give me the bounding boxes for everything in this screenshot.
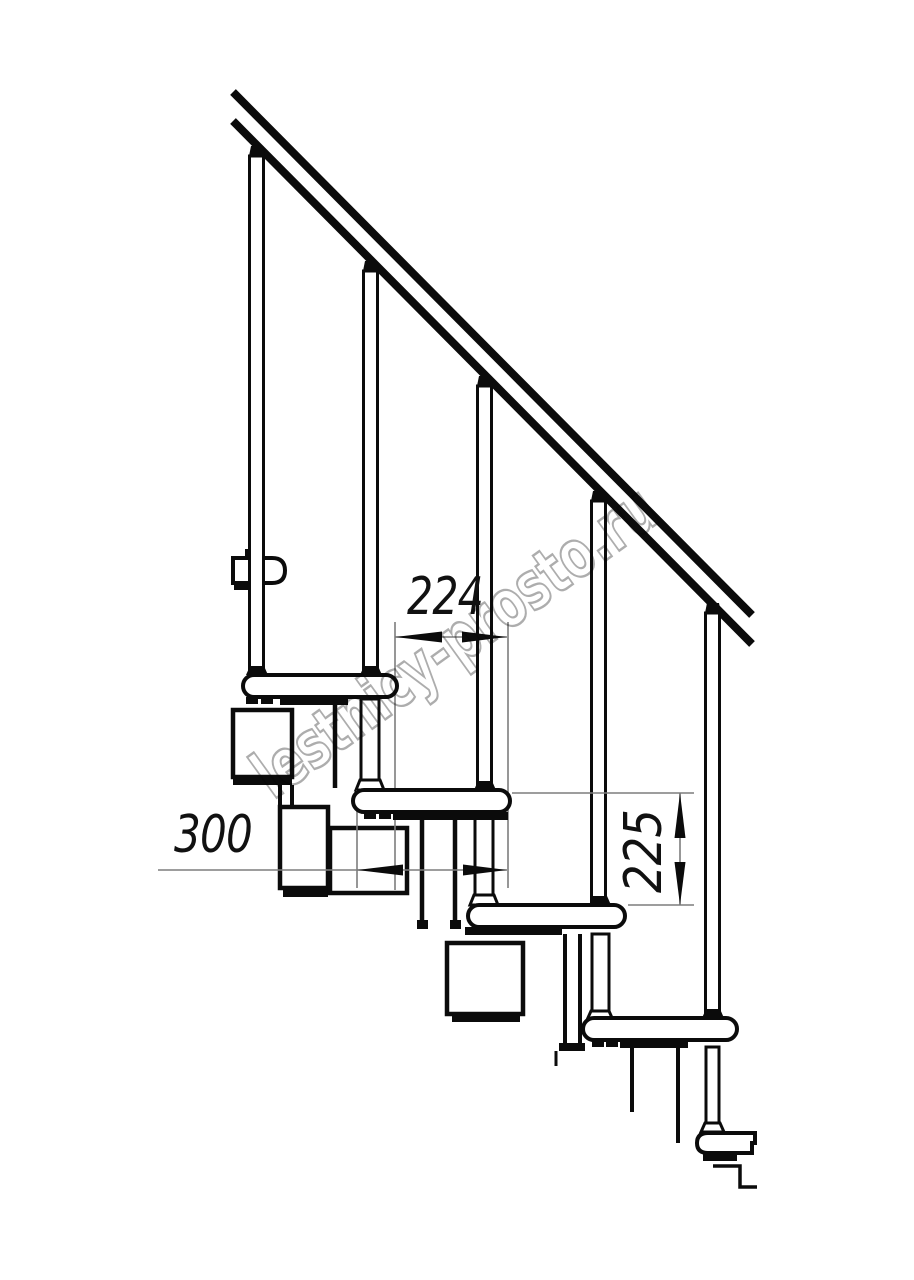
- dimension-rise: 225: [614, 793, 686, 905]
- staircase-drawing: 224 300 225 lestnicy-prosto.ru: [0, 0, 914, 1280]
- tread-5-partial: [697, 1133, 757, 1187]
- tread-2: [353, 790, 510, 820]
- baluster-1: [249, 146, 265, 675]
- dimension-label-300: 300: [174, 805, 252, 865]
- tread-3: [465, 905, 625, 935]
- technical-drawing-page: 224 300 225 lestnicy-prosto.ru: [0, 0, 914, 1280]
- baluster-5: [705, 603, 721, 1018]
- tread-4: [583, 1018, 737, 1048]
- dimension-label-225: 225: [614, 810, 674, 893]
- baluster-2: [363, 261, 379, 675]
